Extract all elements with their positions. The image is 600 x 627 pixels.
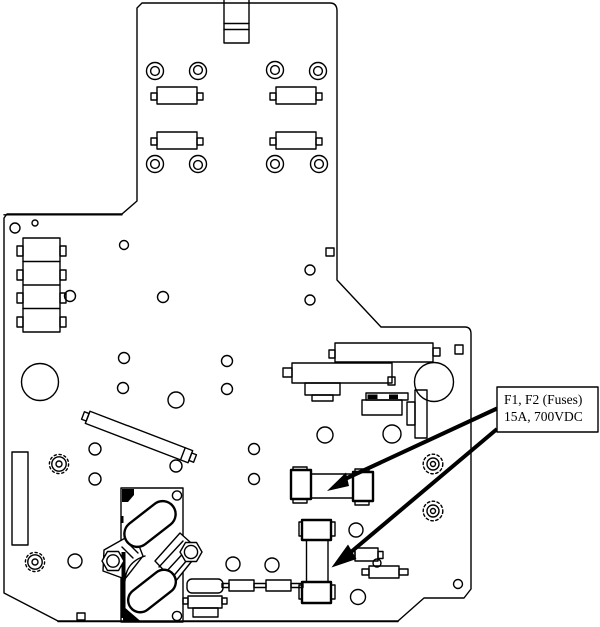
gear-screw — [49, 454, 68, 473]
diagonal-component — [81, 409, 198, 464]
screw-hole — [147, 63, 164, 80]
component-footprint — [270, 132, 322, 149]
board-holes — [10, 220, 463, 620]
figure-canvas: F1, F2 (Fuses) 15A, 700VDC — [0, 0, 600, 627]
fuse-cap — [302, 582, 331, 603]
edge-connector-slot — [12, 452, 28, 545]
large-hole — [22, 364, 59, 401]
screw-hole — [311, 156, 328, 173]
component-footprint — [151, 87, 203, 104]
screw-hole — [267, 62, 284, 79]
component-footprint — [362, 566, 408, 578]
busbar-assembly — [102, 488, 202, 622]
busbar-channel — [123, 565, 180, 617]
gear-screw — [423, 454, 443, 474]
fuse-cap — [291, 470, 311, 499]
top-screw-holes — [147, 62, 328, 173]
fuse-cap — [353, 472, 373, 501]
resistor — [266, 580, 303, 591]
left-side-parts — [12, 364, 69, 572]
component-footprint — [151, 132, 203, 149]
screw-hole — [310, 63, 327, 80]
fuse-body — [307, 537, 329, 586]
connector-stack — [17, 238, 66, 332]
gear-screw — [25, 552, 44, 571]
screw-hole — [147, 156, 164, 173]
fuse-cap — [302, 520, 331, 540]
relay-block — [283, 343, 454, 438]
screw-hole — [190, 63, 207, 80]
gear-screw — [423, 501, 443, 521]
arrowhead — [327, 473, 349, 492]
callout-text-line2: 15A, 700VDC — [504, 409, 583, 424]
resistor — [222, 580, 266, 591]
callout-text-line1: F1, F2 (Fuses) — [504, 392, 582, 407]
corner-screw — [172, 611, 181, 620]
discrete-components — [183, 548, 408, 617]
relay-coil — [415, 363, 454, 402]
pcb-diagram: F1, F2 (Fuses) 15A, 700VDC — [0, 0, 600, 627]
mounting-tab — [224, 0, 249, 43]
component-footprint — [270, 87, 322, 104]
screw-hole — [267, 156, 284, 173]
corner-screw — [172, 491, 181, 500]
screw-hole — [190, 156, 207, 173]
board-outline — [4, 3, 471, 622]
fuse-f2 — [299, 520, 335, 603]
top-components — [151, 87, 322, 149]
capacitor-stack — [183, 579, 227, 617]
